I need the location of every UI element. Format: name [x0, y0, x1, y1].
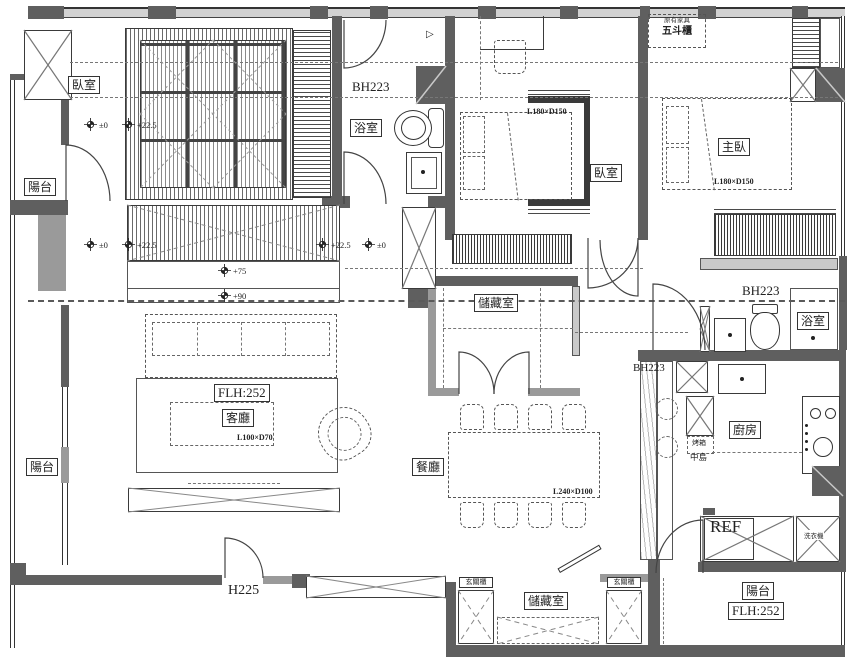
label-entry-cabinet-left: 玄關櫃 [459, 577, 493, 588]
dim-bed-center: L180×D150 [527, 107, 567, 116]
wall-bedroom2-master [638, 16, 648, 240]
kitchen-xbox-cross [676, 361, 708, 393]
toilet-bowl-inner-bath1 [401, 116, 426, 140]
left-inner-wall-window [62, 387, 68, 447]
balcony-br-dashed [663, 578, 664, 644]
sofa-divider [241, 322, 242, 356]
duct-kitchen-diagonal [812, 466, 843, 496]
stove-knob [805, 440, 808, 443]
label-bedroom-top-left: 臥室 [68, 76, 100, 94]
wardrobe-master-hatch-top [714, 208, 836, 214]
door-master-bedroom [600, 240, 638, 296]
sofa-divider [197, 322, 198, 356]
bed-center-hatch-bottom [528, 207, 590, 214]
bed-center-hatch-top [528, 88, 590, 95]
closet-master-side [820, 18, 840, 68]
bed-master-pillow [666, 106, 689, 144]
label-bedroom-center: 臥室 [590, 164, 622, 182]
storage-center-shelf-v2 [540, 288, 541, 388]
dining-chair [528, 404, 552, 430]
left-inner-wall-seg [61, 447, 69, 483]
level-marker-icon [84, 238, 97, 251]
level-value: +22.5 [137, 240, 157, 250]
balcony-wall-horizontal [10, 200, 68, 215]
dining-chair [494, 502, 518, 528]
door-balcony-bottom-right [656, 520, 703, 573]
level-value: +22.5 [331, 240, 351, 250]
dining-chair [460, 502, 484, 528]
top-wall-column [370, 6, 388, 19]
label-bathroom-left: 浴室 [350, 119, 382, 137]
level-marker: ±0 [362, 238, 386, 251]
balcony-wall-step [38, 215, 66, 291]
bed-center-frame-bottom [528, 199, 590, 206]
desk-dashed-line [480, 16, 481, 100]
right-outer-wall [841, 16, 845, 256]
label-floor-height-living: FLH:252 [214, 384, 270, 402]
label-entry-door-height: H225 [228, 584, 259, 598]
tv-cabinet-x [128, 488, 340, 512]
stove-burner-small [810, 408, 821, 419]
dim-dining-table: L240×D100 [553, 487, 593, 496]
dresser-label-group: 原有家具 五斗櫃 [650, 16, 704, 38]
label-floor-height-balcony: FLH:252 [728, 602, 784, 620]
label-dresser: 五斗櫃 [650, 25, 704, 38]
column-x-cross [24, 30, 72, 100]
closet-master-slats [792, 18, 820, 68]
storage-center-shelf-line [443, 328, 573, 329]
right-wall-kitchen [839, 350, 846, 572]
toilet-bowl-bath2 [750, 312, 780, 350]
sink-drain-bath2 [728, 333, 732, 337]
storage-bottom-item-x [497, 617, 599, 644]
level-marker-icon [218, 289, 231, 302]
label-bathroom-right: 浴室 [797, 312, 829, 330]
storage-center-top-wall [428, 276, 578, 286]
level-marker-icon [122, 118, 135, 131]
label-island: 中島 [690, 451, 707, 463]
level-value: +22.5 [137, 120, 157, 130]
shoe-cabinet-x [306, 576, 446, 598]
stove-counter [802, 396, 840, 474]
label-dining-room: 餐廳 [412, 458, 444, 476]
balcony-inner-wall-upper [61, 96, 69, 145]
label-balcony-upper-left: 陽台 [24, 178, 56, 196]
top-wall-column [310, 6, 328, 19]
level-value: ±0 [377, 240, 386, 250]
bottom-wall-main [446, 645, 845, 657]
right-wall-balcony [841, 572, 845, 648]
level-value: +75 [233, 266, 246, 276]
level-marker: +90 [218, 289, 246, 302]
bed-center-frame-right [584, 96, 590, 206]
level-marker-icon [122, 238, 135, 251]
label-oven: 烤箱 [692, 438, 706, 448]
entry-cabinet-x-left [458, 590, 494, 644]
top-wall-column [28, 6, 64, 19]
left-inner-wall-window [62, 483, 68, 565]
ref-wall-tick [703, 508, 715, 515]
kitchen-counter-dashed [712, 452, 802, 453]
window-vent-triangle-icon: ▷ [426, 29, 434, 40]
sofa-divider [285, 322, 286, 356]
dining-chair [562, 404, 586, 430]
level-value: +90 [233, 291, 246, 301]
left-inner-wall [61, 305, 69, 387]
bottom-wall-left [10, 575, 222, 585]
storage-center-shelf-v1 [443, 288, 444, 388]
label-beam-kitchen: BH223 [633, 361, 665, 375]
level-value: ±0 [99, 240, 108, 250]
desk-chair [494, 40, 526, 74]
wall-kitchen-balcony-vert [648, 560, 660, 655]
wardrobe-left-top [293, 30, 331, 198]
label-beam-bath-left: BH223 [352, 80, 390, 94]
wardrobe-center-bedroom [452, 234, 572, 264]
right-wall-seg [839, 256, 847, 350]
bed-center-pillow [463, 116, 485, 153]
sink-drain-bath1 [421, 170, 425, 174]
storage-center-bottom-stub-left [428, 388, 459, 396]
dining-chair [460, 404, 484, 430]
door-bath1-lower [344, 152, 386, 204]
kitchen-sink-drain [740, 377, 744, 381]
label-balcony-lower-left: 陽台 [26, 458, 58, 476]
label-beam-master: BH223 [742, 284, 780, 298]
label-balcony-bottom-right: 陽台 [742, 582, 774, 600]
appliance-circle [656, 436, 678, 458]
bed-master-pillow [666, 147, 689, 183]
dining-chair [528, 502, 552, 528]
bottom-wall-seg [263, 576, 293, 584]
door-storage-center-left [459, 352, 494, 394]
top-wall-column [560, 6, 578, 19]
level-marker-icon [362, 238, 375, 251]
door-balcony-upper-left [66, 145, 110, 201]
dining-chair [562, 502, 586, 528]
storage-center-right-wall [572, 286, 580, 356]
island-x-cross [686, 396, 714, 436]
label-washer: 洗衣機 [804, 530, 824, 540]
wall-bedroom1-bath1 [332, 16, 342, 206]
label-refrigerator: REF [710, 520, 741, 534]
appliance-circle [656, 398, 678, 420]
level-marker-icon [84, 118, 97, 131]
level-marker-icon [316, 238, 329, 251]
label-master-bedroom: 主臥 [718, 138, 750, 156]
shaft-x-cross [402, 207, 436, 289]
label-storage-bottom: 儲藏室 [524, 592, 568, 610]
level-marker: +22.5 [122, 118, 157, 131]
wall-balcony-br-top [698, 562, 845, 572]
dining-chair [494, 404, 518, 430]
storage-center-bottom-stub-right [528, 388, 580, 396]
top-wall-column [148, 6, 176, 19]
stove-knob [805, 424, 808, 427]
label-existing-furniture: 原有家具 [650, 16, 704, 25]
storage-door-leaf [558, 545, 602, 573]
level-marker: +75 [218, 264, 246, 277]
stove-burner-large [813, 437, 833, 457]
tv-shelf-ticks [188, 483, 280, 484]
label-living-room: 客廳 [222, 409, 254, 427]
level-marker: +22.5 [316, 238, 351, 251]
dim-bed-master: L180×D150 [714, 177, 754, 186]
stove-knob [805, 432, 808, 435]
stove-burner-small [825, 408, 836, 419]
cabinet-band-x [127, 205, 340, 261]
master-wardrobe-counter [700, 258, 838, 270]
door-bath2 [653, 284, 705, 350]
storage-bottom-left-wall [446, 582, 456, 648]
tall-cabinet-wood [640, 361, 657, 560]
duct-master-diagonal [816, 68, 845, 102]
floor-plan: ▷ [0, 0, 850, 659]
label-storage-center: 儲藏室 [474, 294, 518, 312]
duct-diagonal [416, 66, 446, 104]
door-storage-center-right [494, 352, 529, 394]
wall-bath1-bedroom2 [445, 16, 455, 240]
level-marker-icon [218, 264, 231, 277]
level-marker: +22.5 [122, 238, 157, 251]
shower-drain-bath2 [811, 336, 815, 340]
entry-cabinet-x-right [606, 590, 642, 644]
bed-center-pillow [463, 156, 485, 190]
stove-knob [805, 448, 808, 451]
bed-left-cross-lines [140, 40, 286, 188]
level-marker: ±0 [84, 238, 108, 251]
desk-line-v [543, 16, 544, 50]
label-entry-cabinet-right: 玄關櫃 [607, 577, 641, 588]
wardrobe-master [714, 214, 836, 256]
beam-dashed-line-main [28, 300, 845, 302]
door-entry [225, 538, 263, 578]
column-master-x [790, 68, 816, 102]
level-marker: ±0 [84, 118, 108, 131]
dim-sofa: L100×D70 [237, 433, 273, 442]
label-kitchen: 廚房 [729, 421, 761, 439]
level-value: ±0 [99, 120, 108, 130]
door-bath1-upper [344, 20, 386, 68]
